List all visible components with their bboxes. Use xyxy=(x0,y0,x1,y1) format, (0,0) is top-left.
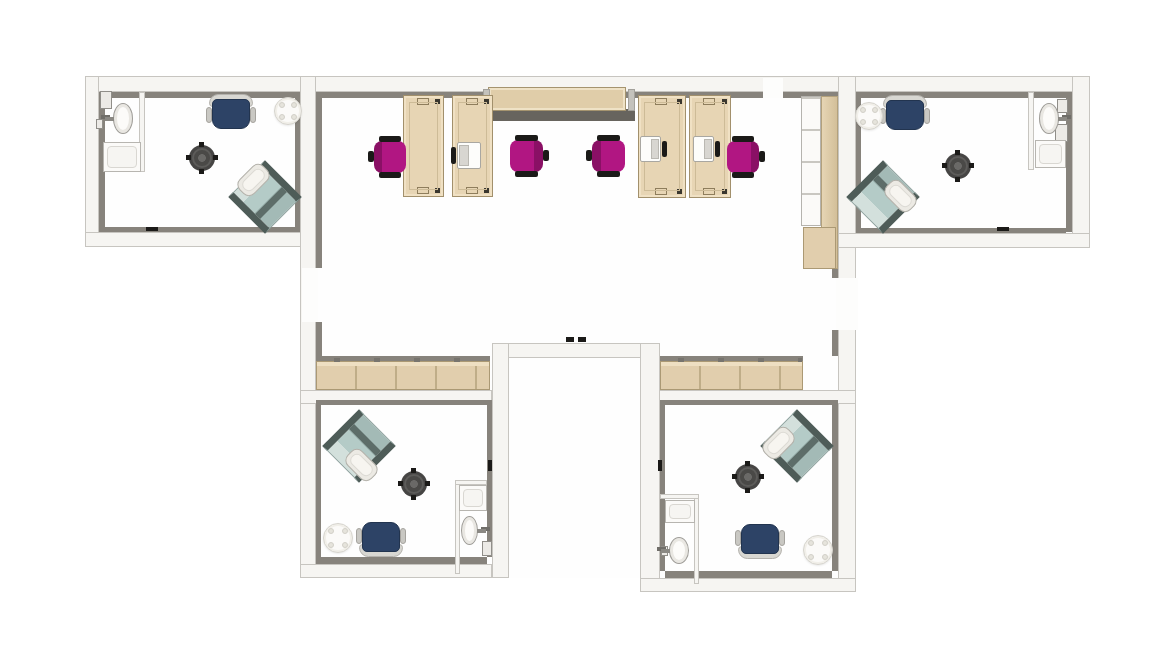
bath-partition-bottom-right-h xyxy=(660,494,699,499)
floor-corridor xyxy=(509,358,640,578)
armchair-bottom-left[interactable] xyxy=(362,522,400,552)
wall-right-wing-south xyxy=(838,233,1090,248)
round-table-top-right[interactable] xyxy=(855,102,883,130)
floor-plan xyxy=(0,0,1166,656)
wall-cabinet xyxy=(100,91,112,109)
side-table-bottom-left[interactable] xyxy=(401,471,427,497)
wall-spine-west xyxy=(300,76,316,578)
wall-shadow xyxy=(316,557,487,564)
wall-left-wing-west xyxy=(85,76,99,247)
task-chair-3[interactable] xyxy=(592,140,625,172)
wall-left-wing-south xyxy=(85,232,316,247)
door-opening-top xyxy=(763,78,783,98)
door-mark xyxy=(566,337,574,342)
credenza-right[interactable] xyxy=(660,361,803,390)
wall-spine-east xyxy=(838,76,856,592)
task-chair-2[interactable] xyxy=(510,140,543,172)
door-mark xyxy=(997,227,1009,231)
low-cabinet[interactable] xyxy=(803,227,836,269)
wall-corridor-west xyxy=(492,343,509,578)
task-chair-4[interactable] xyxy=(727,141,759,173)
credenza-left[interactable] xyxy=(316,361,490,390)
door-mark xyxy=(146,227,158,231)
door-mark xyxy=(488,460,492,471)
round-table-bottom-left[interactable] xyxy=(323,523,353,553)
sink-top-right[interactable] xyxy=(1039,103,1059,134)
laptop-3[interactable] xyxy=(693,136,714,162)
wall-shadow xyxy=(316,400,321,560)
wall-shadow xyxy=(487,400,492,557)
side-table-top-left[interactable] xyxy=(189,145,215,171)
vanity-counter-bottom-left[interactable] xyxy=(459,485,487,511)
wall-shadow xyxy=(316,92,322,268)
media-cabinet-end-right[interactable] xyxy=(628,89,635,111)
wall-cabinet xyxy=(1057,99,1068,113)
vanity-counter-bottom-right[interactable] xyxy=(665,500,695,523)
round-table-top-left[interactable] xyxy=(274,97,302,125)
wall-shadow xyxy=(832,330,838,356)
armchair-top-left[interactable] xyxy=(212,99,250,129)
armchair-top-right[interactable] xyxy=(886,100,924,130)
bath-partition-top-right xyxy=(1028,92,1034,170)
vanity-counter-top-left[interactable] xyxy=(103,142,141,172)
wall-fixture xyxy=(96,119,103,129)
vanity-counter-top-right[interactable] xyxy=(1035,140,1066,168)
laptop-1[interactable] xyxy=(457,142,481,169)
door-opening-east xyxy=(836,278,858,330)
wall-shadow xyxy=(1066,92,1072,232)
wall-shadow xyxy=(665,400,832,405)
sink-bottom-right[interactable] xyxy=(669,537,689,564)
side-table-bottom-right[interactable] xyxy=(735,464,761,490)
door-mark xyxy=(658,460,662,471)
shelf-unit[interactable] xyxy=(801,96,821,226)
wall-corridor-top xyxy=(492,343,658,358)
wall-shadow xyxy=(665,571,832,578)
sink-top-left[interactable] xyxy=(113,103,133,134)
side-table-top-right[interactable] xyxy=(945,153,971,179)
wall-shadow xyxy=(316,400,487,405)
task-chair-1[interactable] xyxy=(374,141,406,173)
wall-shadow xyxy=(832,400,838,571)
door-opening-west xyxy=(302,268,318,322)
wall-shadow xyxy=(99,92,300,98)
wall-right-wing-east xyxy=(1072,76,1090,248)
sink-bottom-left[interactable] xyxy=(461,516,478,545)
armchair-bottom-right[interactable] xyxy=(741,524,779,554)
wall-fixture xyxy=(482,541,492,556)
laptop-2[interactable] xyxy=(640,136,661,162)
wall-corridor-east xyxy=(640,343,660,592)
wall-bottom-right-south xyxy=(640,578,856,592)
desk-1[interactable] xyxy=(403,95,444,197)
media-cabinet[interactable] xyxy=(488,87,626,111)
wall-shadow xyxy=(316,322,322,356)
round-table-bottom-right[interactable] xyxy=(803,535,833,565)
door-mark xyxy=(578,337,586,342)
wall-bottom-left-south xyxy=(300,564,492,578)
